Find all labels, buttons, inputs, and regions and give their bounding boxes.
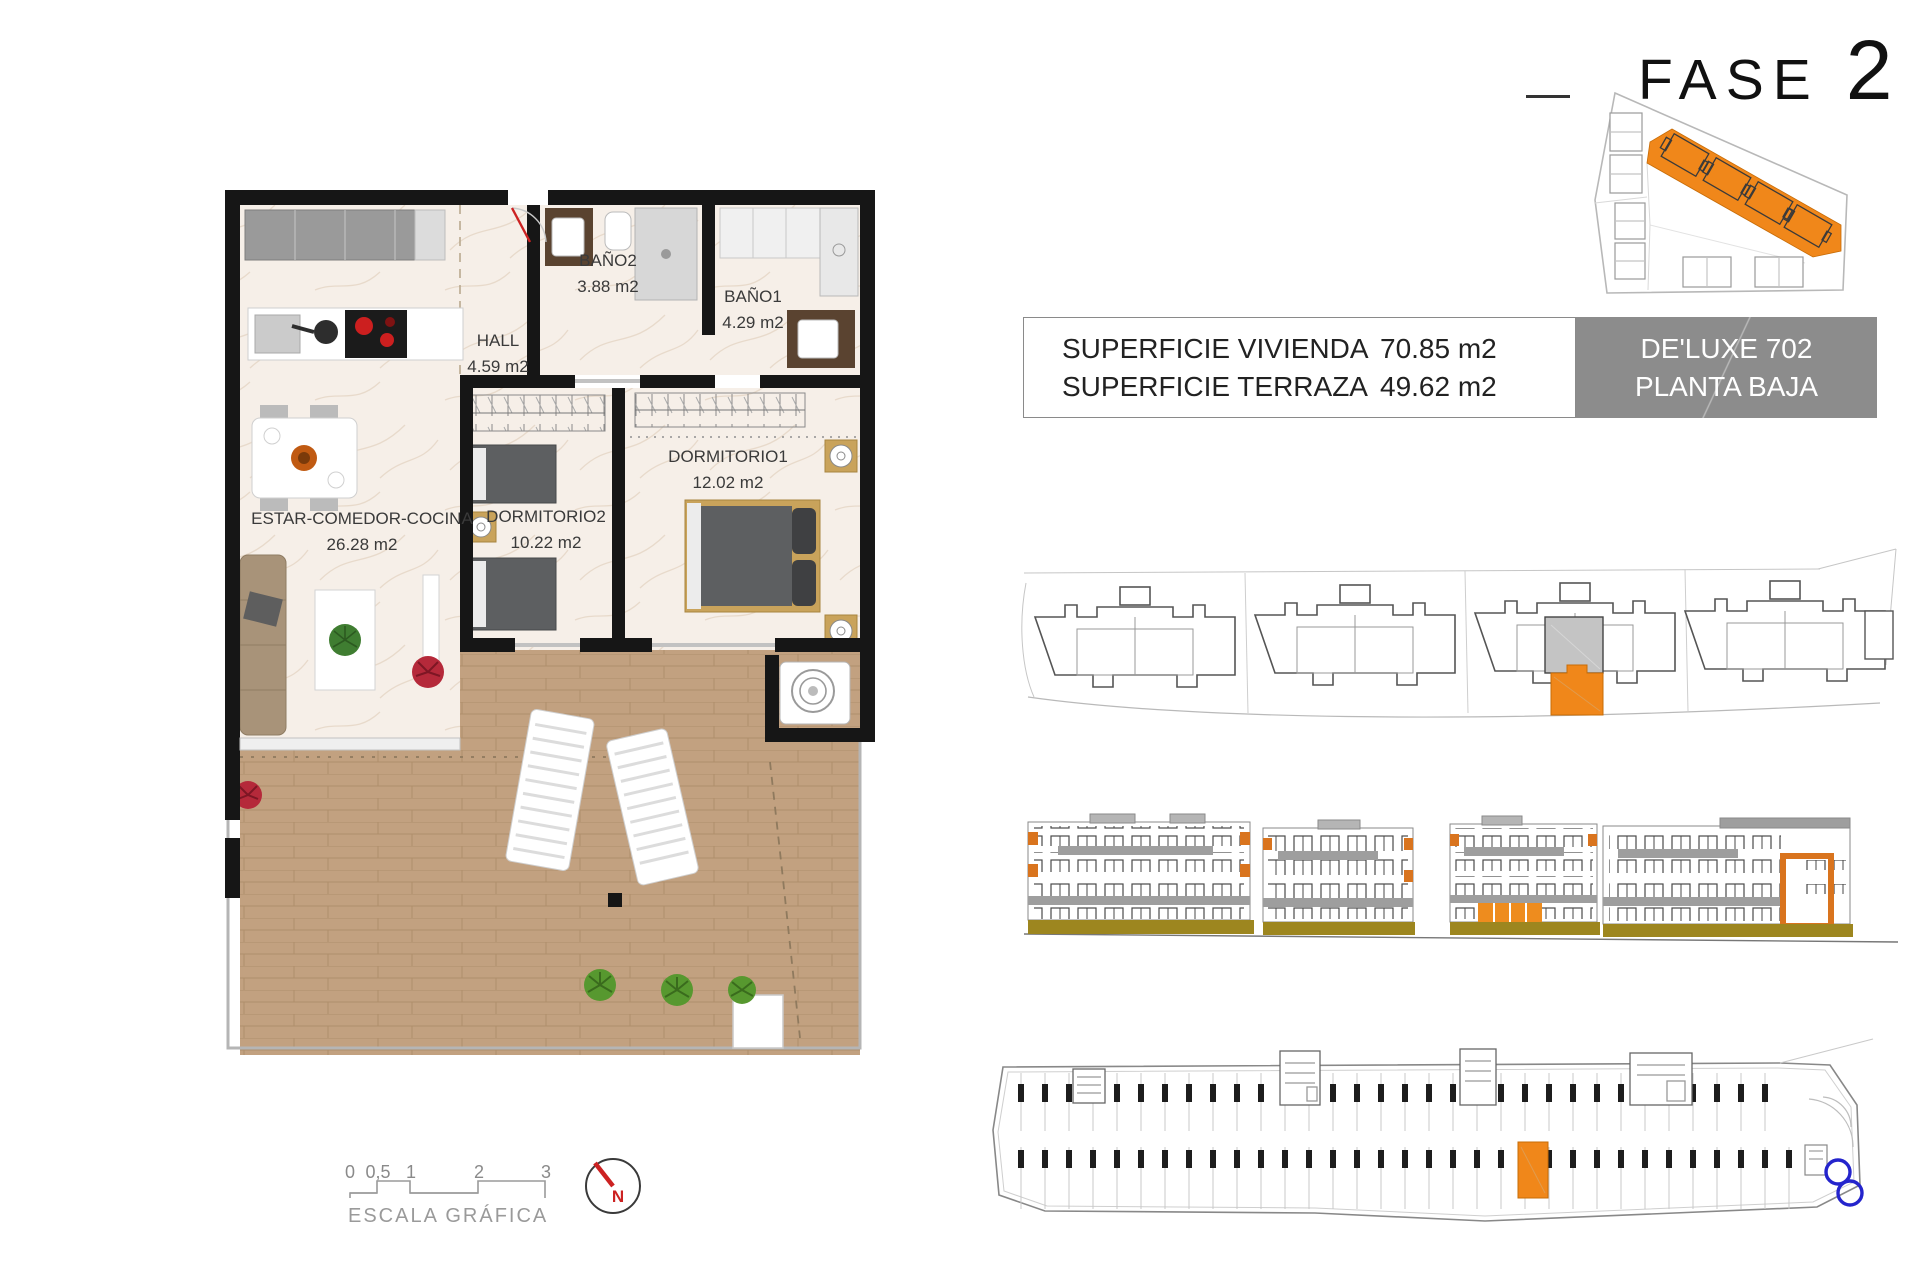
room-area-dorm2: 10.22 m2: [511, 533, 582, 552]
elevation-building-3: [1450, 816, 1600, 935]
unit-floor: PLANTA BAJA: [1635, 368, 1818, 406]
outdoor-shower: [780, 662, 850, 724]
sofa: [240, 555, 286, 735]
room-label-dorm1: DORMITORIO1: [668, 447, 788, 466]
surface-row: SUPERFICIE VIVIENDA 70.85 m2: [1062, 333, 1575, 365]
scale-tick-1: 1: [406, 1162, 416, 1182]
north-compass: N: [586, 1159, 640, 1213]
surface-info-panel: SUPERFICIE VIVIENDA 70.85 m2 SUPERFICIE …: [1023, 317, 1576, 418]
room-area-hall: 4.59 m2: [467, 357, 528, 376]
scale-tick-0: 0: [345, 1162, 355, 1182]
living-window-band: [240, 738, 460, 750]
dorm1-wardrobe: [635, 393, 805, 427]
unit-name: DE'LUXE 702: [1641, 330, 1813, 368]
scale-bar-line: [350, 1181, 545, 1198]
room-label-hall: HALL: [477, 331, 520, 350]
kitchen-cabinets: [245, 210, 445, 260]
dorm2-wardrobe: [472, 395, 605, 431]
apartment-floorplan: HALL 4.59 m2 BAÑO2 3.88 m2 BAÑO1 4.29 m2…: [180, 150, 900, 1100]
room-area-bano2: 3.88 m2: [577, 277, 638, 296]
scale-bar-and-compass: 0 0,5 1 2 3 ESCALA GRÁFICA N: [330, 1150, 670, 1260]
room-area-dorm1: 12.02 m2: [693, 473, 764, 492]
surface-row: SUPERFICIE TERRAZA 49.62 m2: [1062, 371, 1575, 403]
ground-level-plan: [985, 1035, 1905, 1270]
site-plan-map: [1555, 85, 1905, 310]
scale-tick-05: 0,5: [365, 1162, 390, 1182]
dining-table: [252, 405, 357, 511]
scale-tick-3: 3: [541, 1162, 551, 1182]
scale-tick-2: 2: [474, 1162, 484, 1182]
block-plan-strip: [1020, 545, 1900, 780]
elevation-building-4: [1603, 818, 1853, 937]
highlighted-unit-roofplan: [1545, 617, 1603, 715]
north-label: N: [612, 1187, 624, 1206]
unit-identifier-box: DE'LUXE 702 PLANTA BAJA: [1576, 317, 1877, 418]
elevation-building-1: [1028, 814, 1254, 934]
room-label-living: ESTAR-COMEDOR-COCINA: [251, 509, 473, 528]
surface-vivienda-value: 70.85 m2: [1380, 333, 1550, 365]
room-label-bano1: BAÑO1: [724, 287, 782, 306]
scale-caption: ESCALA GRÁFICA: [348, 1204, 548, 1227]
room-label-dorm2: DORMITORIO2: [486, 507, 606, 526]
elevation-strip: [1020, 808, 1900, 978]
kitchen-island: [248, 308, 463, 360]
surface-terraza-value: 49.62 m2: [1380, 371, 1550, 403]
room-label-bano2: BAÑO2: [579, 251, 637, 270]
brochure-page: FASE 2 SUPERF: [0, 0, 1920, 1280]
room-area-living: 26.28 m2: [327, 535, 398, 554]
surface-terraza-label: SUPERFICIE TERRAZA: [1062, 371, 1380, 403]
surface-vivienda-label: SUPERFICIE VIVIENDA: [1062, 333, 1380, 365]
room-area-bano1: 4.29 m2: [722, 313, 783, 332]
elevation-building-2: [1263, 820, 1415, 935]
